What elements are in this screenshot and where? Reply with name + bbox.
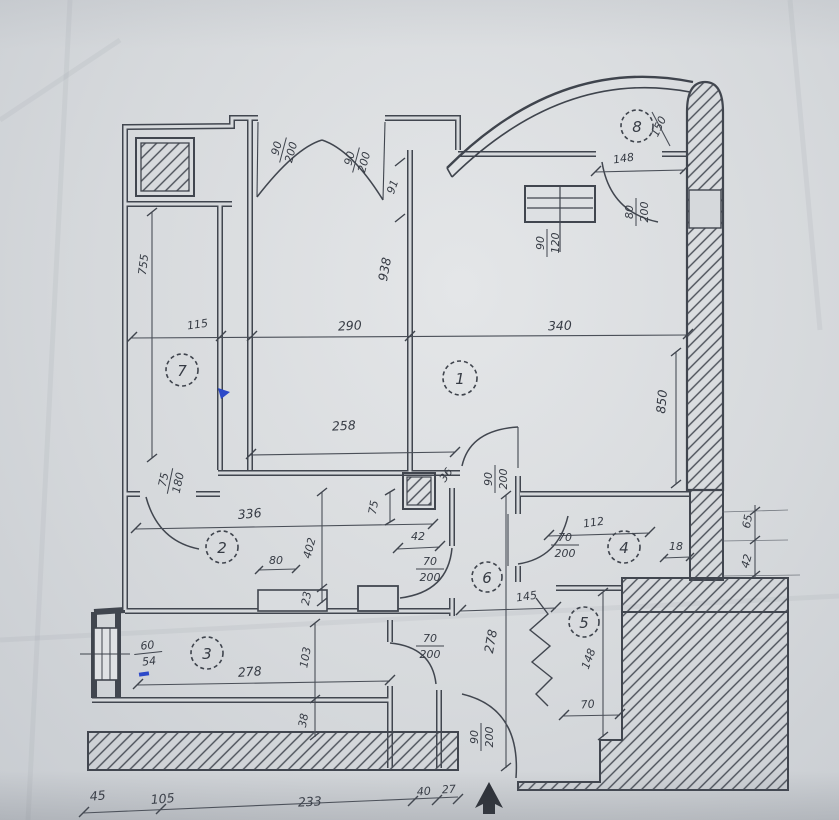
room-marker-1: 1 [443,361,477,395]
dim-148-balcony8: 148 [612,151,635,167]
door-label-den: 200 [497,469,510,490]
door-label-num: 90 [482,472,495,486]
dim-75: 75 [366,499,381,515]
door-label-room3: 70 200 [416,632,444,661]
room-marker-3: 3 [191,637,223,669]
door-label-balcony8: 80 200 [623,198,651,226]
door-label-den: 200 [555,547,576,560]
room-number: 1 [455,370,465,388]
door-label-hall: 90 200 [482,465,510,493]
dim-278-room3: 278 [237,663,262,680]
door-label-entry: 90 200 [468,723,496,751]
dim-938: 938 [375,256,394,282]
room-number: 4 [619,539,629,557]
hall-door-arc [462,427,518,466]
dim-36: 36 [437,466,456,485]
dim-105: 105 [150,790,175,807]
dim-27: 27 [441,783,456,797]
entry-arrow-icon [475,782,503,814]
bottom-wall [88,732,458,770]
room-marker-4: 4 [608,531,640,563]
dim-91: 91 [384,178,401,196]
dim-23: 23 [299,590,314,606]
door-label-num: 70 [423,555,437,568]
door-label-num: 70 [558,531,572,544]
dim-336: 336 [237,505,262,522]
door-label-num: 70 [423,632,437,645]
right-column [687,82,723,490]
room-number: 6 [482,569,492,587]
dim-80: 80 [269,554,283,567]
dim-145: 145 [515,589,538,605]
dim-18: 18 [669,540,683,553]
room-number: 5 [579,614,589,632]
dim-42-shaft: 42 [411,530,425,543]
room2-niche [258,590,327,611]
dim-258: 258 [331,417,356,433]
door-label-den: 200 [420,648,441,661]
door-label-den: 200 [638,202,651,223]
dim-42-right: 42 [739,553,755,570]
dim-103: 103 [297,646,313,669]
window-label-stair: 90 120 [534,229,562,257]
dim-233: 233 [297,793,322,809]
room-number: 8 [632,118,642,136]
dim-38: 38 [296,712,311,728]
bottom-right-block [518,612,788,790]
door-label-room2: 70 200 [416,555,444,584]
corner-band [622,578,788,612]
dim-65: 65 [740,513,755,529]
room-number: 3 [202,645,212,663]
dim-40: 40 [416,785,431,799]
window-label-num: 90 [534,236,547,250]
dim-340: 340 [548,318,572,334]
balcony8-window-gap [689,190,721,228]
room-marker-7: 7 [166,354,198,386]
window-label-den: 54 [141,654,156,668]
dim-850: 850 [653,389,670,414]
room-marker-8: 8 [621,110,653,142]
pen-mark-blue-2 [139,671,149,676]
floor-plan-drawing: 90 200 90 200 80 200 90 120 75 180 90 20… [0,0,839,820]
dim-70-room5: 70 [580,697,595,711]
dim-402: 402 [301,536,319,560]
door-label-num: 80 [623,205,636,219]
door-label-balcony7: 75 180 [155,466,188,497]
dim-148-room5: 148 [579,647,598,671]
floor-plan-scan: 90 200 90 200 80 200 90 120 75 180 90 20… [0,0,839,820]
room-number: 2 [217,539,227,557]
door-label-num: 90 [468,730,481,744]
walls-inner [92,118,690,768]
door-label-den: 180 [170,471,187,494]
door-label-den: 200 [483,727,496,748]
double-door-arc-right [322,140,383,200]
dim-112: 112 [582,515,605,531]
dim-290: 290 [337,317,362,333]
dim-115: 115 [186,317,209,333]
dim-755: 755 [136,253,151,275]
door-label-top-left: 90 200 [267,134,301,166]
walls [92,118,690,768]
window-label-num: 60 [140,638,155,652]
window-label-den: 120 [549,233,562,254]
dim-278-corridor: 278 [481,628,500,654]
door-label-den: 200 [420,571,441,584]
window-label-left: 60 54 [133,638,164,670]
room2-step [358,586,398,611]
room-marker-6: 6 [472,562,502,592]
double-door-leaf-left [257,122,258,197]
door-label-top-right: 90 200 [340,144,374,176]
room-number: 7 [177,362,187,380]
room-marker-2: 2 [206,531,238,563]
door-label-num: 90 [269,140,285,157]
balcony7-door-arc [146,497,199,549]
right-wall [690,490,723,580]
dim-45: 45 [89,787,106,803]
